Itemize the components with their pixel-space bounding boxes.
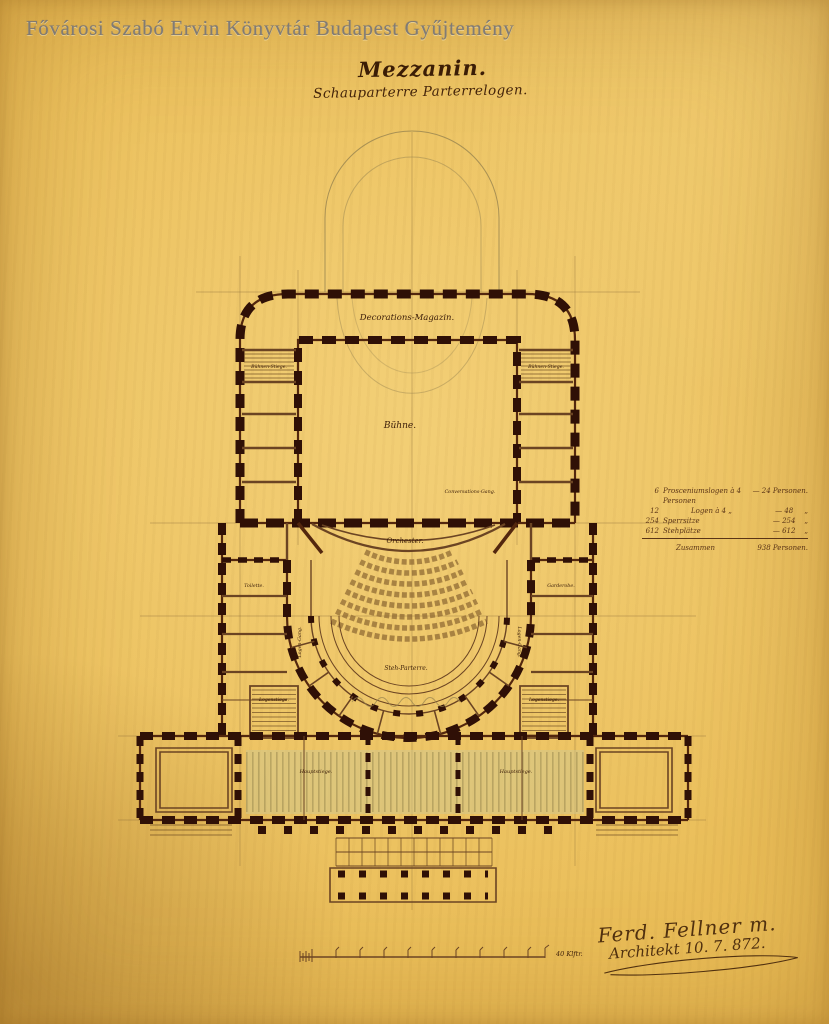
legend-row: 254 Sperrsitze — 254 „: [642, 516, 808, 526]
legend-count: 612: [642, 526, 659, 536]
label-logenstiege-left: Logenstiege.: [258, 697, 289, 703]
legend-total: — 254 „: [773, 516, 808, 526]
label-hauptstiege-left: Hauptstiege.: [299, 769, 333, 775]
legend-total: — 612 „: [773, 526, 808, 536]
legend-total: — 24 Personen.: [753, 486, 808, 506]
legend-item: Sperrsitze: [663, 516, 773, 526]
label-buehnen-stiege-right: Bühnen-Stiege.: [527, 364, 564, 370]
legend-total: — 48 „: [775, 506, 808, 516]
label-conversations-gang: Conversations-Gang.: [445, 489, 496, 495]
label-steh-parterre: Steh-Parterre.: [384, 665, 427, 672]
label-decorations-magazin: Decorations-Magazin.: [359, 313, 454, 323]
scale-label: 40 Klftr.: [555, 950, 583, 958]
label-logenstiege-right: Logenstiege.: [528, 697, 559, 703]
label-buehne: Bühne.: [383, 421, 416, 431]
legend-count: 6: [642, 486, 659, 506]
legend-row: 6 Prosceniumslogen à 4 Personen — 24 Per…: [642, 486, 808, 506]
stage-block-walls: [240, 294, 575, 523]
legend-sum: Zusammen 938 Personen.: [642, 543, 808, 553]
legend-sum-value: 938 Personen.: [757, 543, 808, 553]
legend-rows: 6 Prosceniumslogen à 4 Personen — 24 Per…: [642, 486, 808, 539]
legend-row: 612 Stehplätze — 612 „: [642, 526, 808, 536]
legend-item: Prosceniumslogen à 4 Personen: [663, 486, 753, 506]
label-hauptstiege-right: Hauptstiege.: [499, 769, 533, 775]
seating-legend: 6 Prosceniumslogen à 4 Personen — 24 Per…: [642, 486, 808, 553]
label-logen-gang-right: Logen-Gang.: [516, 625, 522, 658]
label-toilette-left: Toilette.: [244, 583, 264, 589]
scanned-plan-page: Fővárosi Szabó Ervin Könyvtár Budapest G…: [0, 0, 829, 1024]
portico-and-steps: [258, 830, 570, 902]
legend-count: 12: [642, 506, 659, 516]
legend-row: 12 Logen à 4 „ — 48 „: [642, 506, 808, 516]
auditorium: [222, 523, 593, 738]
label-buehnen-stiege-left: Bühnen-Stiege.: [250, 364, 287, 370]
label-logen-gang-left: Logen-Gang.: [297, 626, 303, 659]
label-orchester: Orchester.: [386, 537, 423, 545]
legend-item: Logen à 4 „: [663, 506, 775, 516]
label-garderobe-right: Garderobe.: [547, 583, 575, 589]
legend-item: Stehplätze: [663, 526, 773, 536]
legend-sum-label: Zusammen: [676, 543, 715, 553]
lower-block: [140, 736, 688, 835]
legend-count: 254: [642, 516, 659, 526]
scale-bar: 40 Klftr.: [300, 945, 583, 962]
